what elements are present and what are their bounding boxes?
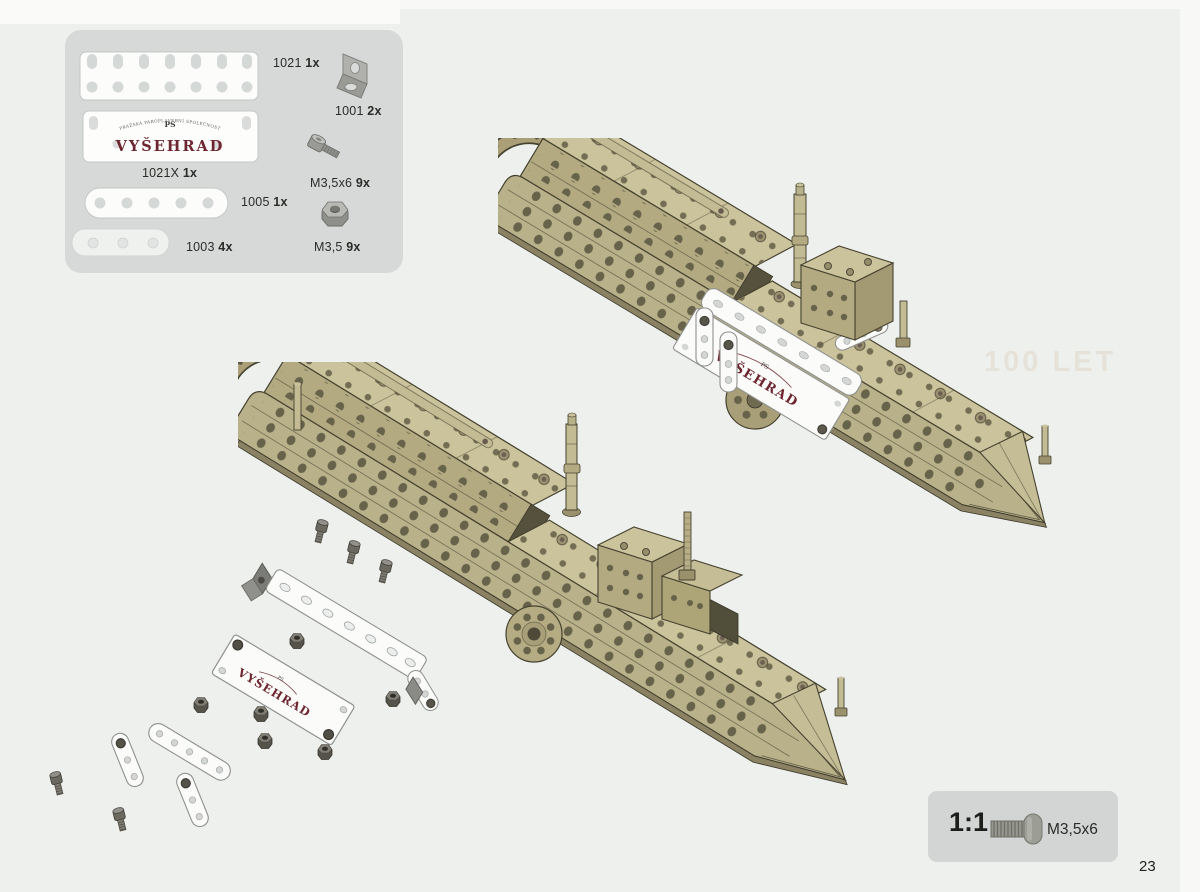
- lower-stern-rod: [294, 382, 301, 430]
- part-label-m35: M3,5 9x: [314, 240, 361, 254]
- exploded-slotted-plate: [235, 557, 459, 718]
- loose-nut: [290, 634, 304, 649]
- loose-screw: [345, 540, 361, 565]
- scan-edge-top-thin: [380, 0, 1200, 9]
- part-strip-1005: [85, 188, 228, 218]
- loose-screw: [313, 519, 329, 544]
- exploded-strip-1003: [174, 771, 211, 829]
- exploded-plate-name: VYŠEHRAD: [234, 665, 313, 720]
- upper-bow-pin: [1039, 425, 1051, 465]
- logo-name: VYŠEHRAD: [115, 137, 225, 155]
- lower-boat-illustration: [238, 362, 898, 872]
- upper-aft-rod: [900, 301, 907, 341]
- loose-nut: [254, 707, 268, 722]
- scale-reference-box: 1:1 M3,5x6: [928, 791, 1118, 862]
- part-label-1001: 1001 2x: [335, 104, 382, 118]
- loose-nut: [194, 698, 208, 713]
- lower-mast: [563, 413, 581, 517]
- nut-m35-icon: [322, 202, 348, 226]
- lower-paddle-wheel: [506, 606, 562, 662]
- part-label-1021x: 1021X 1x: [142, 166, 197, 180]
- part-plate-1021: [80, 52, 258, 100]
- loose-nut: [318, 745, 332, 760]
- manual-page: { "page": { "number": "23", "ghost_text"…: [0, 0, 1200, 892]
- lower-recess-shadow: [653, 570, 738, 644]
- scale-screw-label: M3,5x6: [1047, 821, 1098, 839]
- upper-paddle-housing: PS VYŠEHRAD: [672, 285, 890, 441]
- part-plate-1021x: PRAŽSKÁ PAROPLAVEBNÍ SPOLEČNOST PS VYŠEH…: [83, 111, 258, 162]
- loose-nut: [386, 692, 400, 707]
- exploded-strip-1005: [145, 720, 234, 784]
- exploded-strip-1003: [109, 731, 146, 789]
- part-label-1003: 1003 4x: [186, 240, 233, 254]
- loose-screw: [377, 559, 393, 584]
- scale-screw-icon: [990, 811, 1046, 847]
- exploded-parts-illustration: PS VYŠEHRAD: [35, 512, 465, 852]
- upper-plate-name: VYŠEHRAD: [711, 347, 802, 411]
- part-label-1021: 1021 1x: [273, 56, 320, 70]
- exploded-logo-plate: PS VYŠEHRAD: [211, 634, 355, 746]
- loose-screw: [112, 807, 128, 832]
- exploded-plate-monogram: PS: [276, 675, 284, 683]
- lower-boat-hull: [238, 362, 898, 810]
- upper-paddle-wheel: [726, 371, 784, 429]
- bleed-through-text: 100 LET: [984, 346, 1116, 379]
- bracket-1001-icon: [337, 54, 367, 98]
- parts-panel-graphics: PRAŽSKÁ PAROPLAVEBNÍ SPOLEČNOST PS VYŠEH…: [65, 30, 403, 273]
- loose-nut: [258, 734, 272, 749]
- lower-bow-pin: [835, 677, 847, 717]
- scan-edge-top: [0, 0, 400, 24]
- upper-superstructure: [801, 246, 910, 347]
- upper-plate-monogram: PS: [759, 361, 770, 371]
- upper-mast: [791, 183, 809, 289]
- screw-m35x6-icon: [307, 133, 342, 161]
- lower-superstructure: [598, 527, 742, 634]
- lower-threaded-rod: [679, 512, 695, 580]
- part-strip-1003: [72, 229, 169, 256]
- page-number: 23: [1139, 858, 1156, 875]
- scan-edge-right: [1180, 0, 1200, 892]
- part-label-1005: 1005 1x: [241, 195, 288, 209]
- loose-screw: [49, 771, 65, 796]
- part-label-m35x6: M3,5x6 9x: [310, 176, 370, 190]
- scale-ratio: 1:1: [949, 807, 988, 838]
- parts-panel: PRAŽSKÁ PAROPLAVEBNÍ SPOLEČNOST PS VYŠEH…: [65, 30, 403, 273]
- logo-monogram: PS: [164, 120, 175, 129]
